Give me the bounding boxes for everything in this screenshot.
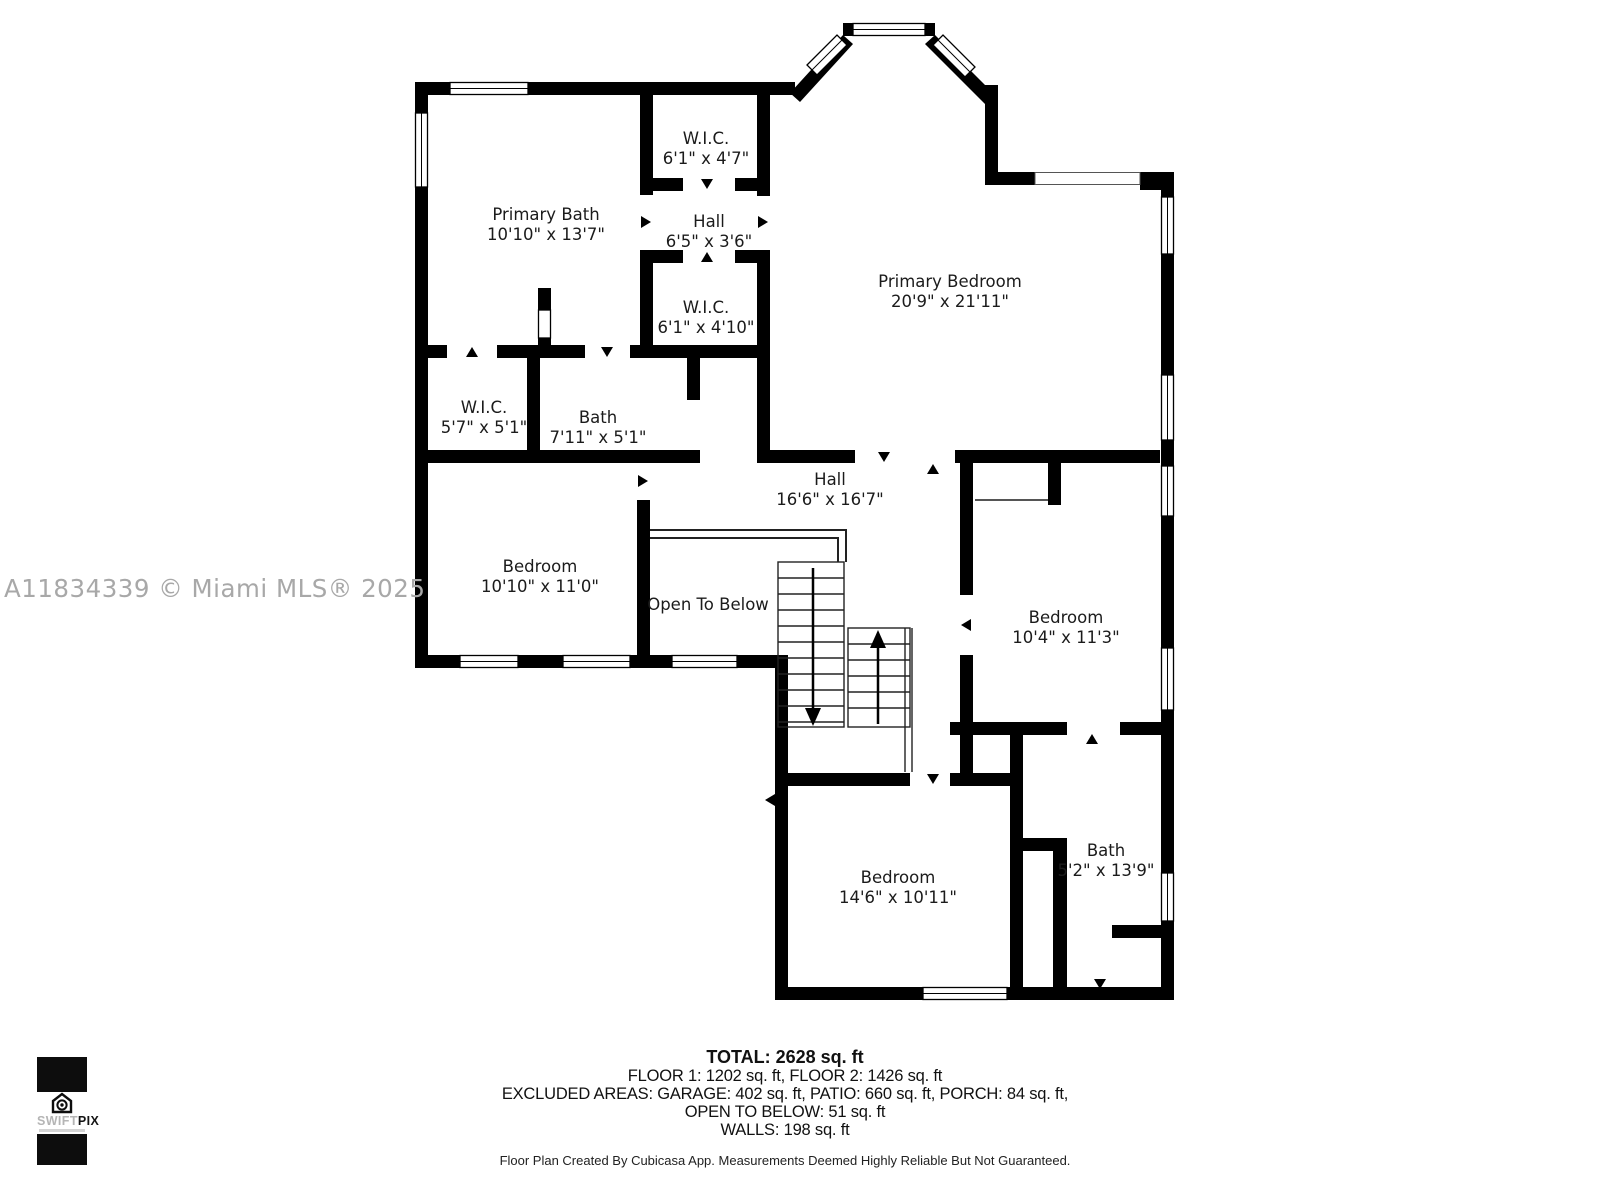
room-label-bedroom-left: Bedroom 10'10" x 11'0" bbox=[481, 557, 599, 597]
window bbox=[672, 656, 737, 668]
room-label-open-to-below: Open To Below bbox=[647, 595, 769, 615]
summary-floors: FLOOR 1: 1202 sq. ft, FLOOR 2: 1426 sq. … bbox=[385, 1067, 1185, 1085]
window bbox=[923, 988, 1007, 1000]
room-dims: 5'2" x 13'9" bbox=[1058, 861, 1155, 881]
area-summary: TOTAL: 2628 sq. ft FLOOR 1: 1202 sq. ft,… bbox=[385, 1048, 1185, 1139]
window bbox=[1162, 375, 1174, 440]
room-label-wic-lower: W.I.C. 5'7" x 5'1" bbox=[441, 398, 528, 438]
room-name: Bath bbox=[550, 408, 647, 428]
window bbox=[450, 83, 528, 95]
opening bbox=[1035, 173, 1140, 185]
room-name: W.I.C. bbox=[663, 129, 750, 149]
room-label-bath-mid: Bath 7'11" x 5'1" bbox=[550, 408, 647, 448]
summary-open-below: OPEN TO BELOW: 51 sq. ft bbox=[385, 1103, 1185, 1121]
summary-excluded: EXCLUDED AREAS: GARAGE: 402 sq. ft, PATI… bbox=[385, 1085, 1185, 1103]
room-dims: 7'11" x 5'1" bbox=[550, 428, 647, 448]
room-name: Bedroom bbox=[839, 868, 957, 888]
room-dims: 6'1" x 4'7" bbox=[663, 149, 750, 169]
room-dims: 6'5" x 3'6" bbox=[666, 232, 753, 252]
room-name: Primary Bedroom bbox=[878, 272, 1022, 292]
room-name: W.I.C. bbox=[658, 298, 755, 318]
room-label-wic-top: W.I.C. 6'1" x 4'7" bbox=[663, 129, 750, 169]
window bbox=[853, 24, 925, 36]
room-name: Primary Bath bbox=[487, 205, 605, 225]
summary-walls: WALLS: 198 sq. ft bbox=[385, 1121, 1185, 1139]
room-name: W.I.C. bbox=[441, 398, 528, 418]
window bbox=[460, 656, 518, 668]
room-label-bedroom-bottom: Bedroom 14'6" x 10'11" bbox=[839, 868, 957, 908]
room-name: Bedroom bbox=[481, 557, 599, 577]
room-dims: 10'10" x 13'7" bbox=[487, 225, 605, 245]
room-dims: 20'9" x 21'11" bbox=[878, 292, 1022, 312]
swiftpix-logo: SWIFTPIX bbox=[37, 1057, 87, 1165]
window bbox=[416, 113, 428, 187]
summary-total: TOTAL: 2628 sq. ft bbox=[385, 1048, 1185, 1067]
window bbox=[1162, 873, 1174, 921]
window bbox=[1162, 648, 1174, 710]
room-label-bedroom-right: Bedroom 10'4" x 11'3" bbox=[1012, 608, 1120, 648]
window-pocket bbox=[539, 310, 551, 338]
room-name: Hall bbox=[776, 470, 884, 490]
room-label-primary-bath: Primary Bath 10'10" x 13'7" bbox=[487, 205, 605, 245]
room-name: Bedroom bbox=[1012, 608, 1120, 628]
stair-direction-arrows bbox=[805, 568, 886, 726]
mls-watermark: A11834339 © Miami MLS® 2025 bbox=[4, 574, 425, 603]
logo-swift: SWIFT bbox=[37, 1114, 78, 1128]
room-label-hall-small: Hall 6'5" x 3'6" bbox=[666, 212, 753, 252]
logo-pix: PIX bbox=[78, 1114, 99, 1128]
logo-tagline-bar bbox=[39, 1129, 85, 1132]
room-label-bath-bottom: Bath 5'2" x 13'9" bbox=[1058, 841, 1155, 881]
room-label-wic-mid: W.I.C. 6'1" x 4'10" bbox=[658, 298, 755, 338]
room-dims: 10'10" x 11'0" bbox=[481, 577, 599, 597]
floorplan-page: Primary Bath 10'10" x 13'7" W.I.C. 6'1" … bbox=[0, 0, 1600, 1200]
room-name: Hall bbox=[666, 212, 753, 232]
room-dims: 6'1" x 4'10" bbox=[658, 318, 755, 338]
logo-wordmark: SWIFTPIX bbox=[37, 1115, 87, 1128]
window bbox=[563, 656, 630, 668]
room-dims: 5'7" x 5'1" bbox=[441, 418, 528, 438]
house-camera-icon bbox=[37, 1092, 87, 1114]
room-label-hall-big: Hall 16'6" x 16'7" bbox=[776, 470, 884, 510]
room-label-primary-bedroom: Primary Bedroom 20'9" x 21'11" bbox=[878, 272, 1022, 312]
room-name: Open To Below bbox=[647, 595, 769, 615]
room-dims: 10'4" x 11'3" bbox=[1012, 628, 1120, 648]
room-name: Bath bbox=[1058, 841, 1155, 861]
window bbox=[1162, 466, 1174, 516]
disclaimer-text: Floor Plan Created By Cubicasa App. Meas… bbox=[385, 1153, 1185, 1168]
logo-top-block bbox=[37, 1057, 87, 1092]
room-dims: 14'6" x 10'11" bbox=[839, 888, 957, 908]
room-dims: 16'6" x 16'7" bbox=[776, 490, 884, 510]
window bbox=[1162, 197, 1174, 254]
logo-bottom-block bbox=[37, 1134, 87, 1165]
